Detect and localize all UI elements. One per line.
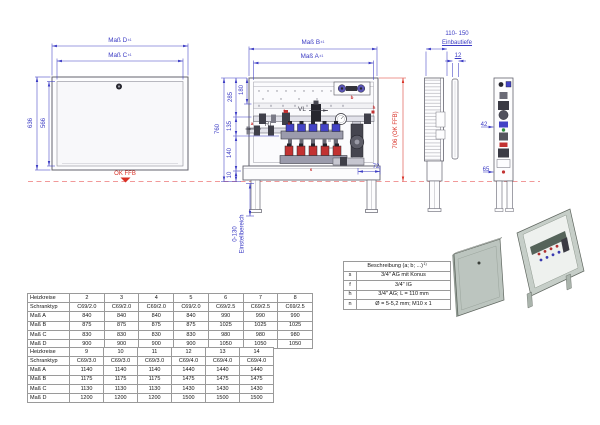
value-cell: 1430 bbox=[172, 384, 206, 393]
value-cell: 1025 bbox=[243, 321, 278, 330]
return-label-rl: RL bbox=[265, 121, 273, 128]
value-cell: 1475 bbox=[172, 375, 206, 384]
dim-140: 140 bbox=[227, 148, 233, 158]
dim-706-okffb: 706 (OK FFB) bbox=[393, 111, 399, 148]
dim-masz-d-tolerance: ±1 bbox=[128, 37, 132, 41]
value-cell: 1140 bbox=[70, 366, 104, 375]
part-letter-b: b bbox=[351, 95, 354, 100]
value-cell: 9 bbox=[70, 348, 104, 357]
value-cell: 980 bbox=[208, 330, 243, 339]
table-row: Maß C113011301130143014301430 bbox=[28, 384, 274, 393]
adjust-range-text: Einstellbereich bbox=[239, 214, 246, 253]
value-cell: 7 bbox=[243, 294, 278, 303]
value-cell: 6 bbox=[208, 294, 243, 303]
circulation-pump bbox=[350, 122, 364, 158]
value-cell: 1175 bbox=[138, 375, 172, 384]
row-header-cell: f bbox=[344, 281, 357, 291]
table-row: Maß D120012001200150015001500 bbox=[28, 393, 274, 402]
value-cell: 830 bbox=[104, 330, 139, 339]
table-row: s3/4" AG mit Konus bbox=[344, 271, 451, 281]
iso-views bbox=[453, 209, 585, 317]
legend-header-note: 1) bbox=[423, 262, 426, 266]
part-letter-h: h bbox=[373, 106, 376, 111]
table-row: SchranktypC69/2.0C69/2.0C69/2.0C69/2.0C6… bbox=[28, 303, 313, 312]
value-cell: 10 bbox=[104, 348, 138, 357]
value-cell: C69/2.0 bbox=[139, 303, 174, 312]
value-cell: 3/4" IG bbox=[357, 281, 451, 291]
value-cell: 830 bbox=[139, 330, 174, 339]
value-cell: C69/3.0 bbox=[138, 357, 172, 366]
value-cell: 1025 bbox=[278, 321, 313, 330]
dim-masz-a-tolerance: ±1 bbox=[319, 53, 323, 57]
legend-header: Beschreibung (a; b; ...)1) bbox=[344, 262, 451, 272]
table-row: f3/4" IG bbox=[344, 281, 451, 291]
dim-masz-c-tolerance: ±1 bbox=[128, 52, 132, 56]
dim-12: 12 bbox=[455, 53, 462, 59]
row-header-cell: Heizkreise bbox=[28, 348, 70, 357]
row-header-cell: Heizkreise bbox=[28, 294, 70, 303]
adjustable-feet bbox=[250, 180, 378, 213]
legend-header-text: Beschreibung (a; b; ...) bbox=[367, 263, 423, 269]
iso-door-panel bbox=[453, 238, 505, 318]
row-header-cell: Maß A bbox=[28, 312, 70, 321]
dim-depth-range: 110- 150 bbox=[445, 31, 468, 37]
value-cell: 3/4" AG; L = 110 mm bbox=[357, 290, 451, 300]
table-row: h3/4" AG; L = 110 mm bbox=[344, 290, 451, 300]
value-cell: 1475 bbox=[240, 375, 274, 384]
iso-cabinet-open bbox=[517, 209, 584, 308]
value-cell: 980 bbox=[278, 330, 313, 339]
value-cell: 1130 bbox=[138, 384, 172, 393]
row-header-cell: Maß B bbox=[28, 375, 70, 384]
row-header-cell: Schranktyp bbox=[28, 357, 70, 366]
value-cell: 875 bbox=[70, 321, 105, 330]
value-cell: 1500 bbox=[240, 393, 274, 402]
value-cell: 11 bbox=[138, 348, 172, 357]
part-letter-n: n bbox=[288, 122, 291, 127]
table-row: Maß B117511751175147514751475 bbox=[28, 375, 274, 384]
side-lock bbox=[499, 82, 504, 87]
dim-285: 285 bbox=[228, 92, 234, 102]
wall-bracket bbox=[334, 82, 370, 95]
value-cell: 830 bbox=[174, 330, 209, 339]
dim-72: 72 bbox=[373, 164, 380, 170]
iso-door-lock bbox=[478, 262, 481, 265]
dim-masz-c: Maß C±1 bbox=[108, 53, 131, 59]
table-row: Heizkreise2345678 bbox=[28, 294, 313, 303]
value-cell: 13 bbox=[206, 348, 240, 357]
value-cell: 1050 bbox=[278, 339, 313, 348]
value-cell: 8 bbox=[278, 294, 313, 303]
dim-42: 42 bbox=[481, 122, 488, 128]
value-cell: C69/2.5 bbox=[278, 303, 313, 312]
dim-depth-label: Einbautiefe bbox=[442, 40, 472, 46]
dim-636: 636 bbox=[28, 118, 34, 128]
row-header-cell: Maß D bbox=[28, 393, 70, 402]
value-cell: 830 bbox=[70, 330, 105, 339]
row-header-cell: Maß C bbox=[28, 384, 70, 393]
dim-masz-a: Maß A±1 bbox=[301, 54, 324, 60]
value-cell: 990 bbox=[208, 312, 243, 321]
table-row: Heizkreise91011121314 bbox=[28, 348, 274, 357]
value-cell: 875 bbox=[104, 321, 139, 330]
value-cell: C69/2.5 bbox=[243, 303, 278, 312]
value-cell: 1175 bbox=[104, 375, 138, 384]
size-table-circuits-2-8: Heizkreise2345678SchranktypC69/2.0C69/2.… bbox=[27, 293, 313, 349]
dim-masz-b-tolerance: ±1 bbox=[321, 39, 325, 43]
value-cell: 1500 bbox=[206, 393, 240, 402]
value-cell: C69/3.0 bbox=[104, 357, 138, 366]
value-cell: 840 bbox=[104, 312, 139, 321]
value-cell: 12 bbox=[172, 348, 206, 357]
value-cell: 4 bbox=[139, 294, 174, 303]
value-cell: 980 bbox=[243, 330, 278, 339]
value-cell: 1200 bbox=[138, 393, 172, 402]
supply-label-vl: VL bbox=[298, 107, 306, 114]
value-cell: 875 bbox=[139, 321, 174, 330]
part-letter-a: a bbox=[251, 122, 254, 127]
value-cell: 3 bbox=[104, 294, 139, 303]
value-cell: 1430 bbox=[206, 384, 240, 393]
adjust-range-label: 0-130 Einstellbereich bbox=[232, 214, 245, 253]
value-cell: 3/4" AG mit Konus bbox=[357, 271, 451, 281]
floor-level-label: OK FFB bbox=[114, 171, 136, 177]
row-header-cell: Schranktyp bbox=[28, 303, 70, 312]
dim-masz-b: Maß B±1 bbox=[301, 40, 324, 46]
value-cell: C69/2.0 bbox=[104, 303, 139, 312]
value-cell: 1430 bbox=[240, 384, 274, 393]
front-view-open bbox=[221, 47, 406, 217]
value-cell: 1200 bbox=[70, 393, 104, 402]
value-cell: Ø = 5-5,2 mm; M10 x 1 bbox=[357, 300, 451, 310]
part-letter-f: f bbox=[283, 110, 285, 115]
value-cell: C69/3.0 bbox=[70, 357, 104, 366]
value-cell: 14 bbox=[240, 348, 274, 357]
value-cell: 840 bbox=[139, 312, 174, 321]
value-cell: 1175 bbox=[70, 375, 104, 384]
value-cell: C69/4.0 bbox=[172, 357, 206, 366]
dim-masz-b-label: Maß B bbox=[301, 39, 320, 46]
legend-header-row: Beschreibung (a; b; ...)1) bbox=[344, 262, 451, 272]
row-header-cell: s bbox=[344, 271, 357, 281]
value-cell: 875 bbox=[174, 321, 209, 330]
dim-65: 65 bbox=[483, 167, 490, 173]
value-cell: 2 bbox=[70, 294, 105, 303]
dim-masz-d: Maß D±1 bbox=[108, 38, 131, 44]
value-cell: C69/4.0 bbox=[206, 357, 240, 366]
table-row: Maß C830830830830980980980 bbox=[28, 330, 313, 339]
value-cell: 1440 bbox=[206, 366, 240, 375]
side-view-wall-section bbox=[425, 49, 467, 212]
legend-table: Beschreibung (a; b; ...)1) s3/4" AG mit … bbox=[343, 261, 451, 310]
dim-135: 135 bbox=[227, 121, 233, 131]
table-row: Maß A840840840840990990990 bbox=[28, 312, 313, 321]
dim-566: 566 bbox=[41, 118, 47, 128]
adjust-range-value: 0-130 bbox=[232, 214, 239, 253]
value-cell: C69/2.0 bbox=[174, 303, 209, 312]
value-cell: 1025 bbox=[208, 321, 243, 330]
value-cell: 1500 bbox=[172, 393, 206, 402]
row-header-cell: Maß B bbox=[28, 321, 70, 330]
dim-10: 10 bbox=[227, 172, 233, 179]
row-header-cell: Maß A bbox=[28, 366, 70, 375]
table-row: nØ = 5-5,2 mm; M10 x 1 bbox=[344, 300, 451, 310]
part-letter-s: s bbox=[310, 168, 313, 173]
table-row: Maß B875875875875102510251025 bbox=[28, 321, 313, 330]
value-cell: 1440 bbox=[172, 366, 206, 375]
dim-masz-d-label: Maß D bbox=[108, 37, 127, 44]
value-cell: 1140 bbox=[138, 366, 172, 375]
table-row: SchranktypC69/3.0C69/3.0C69/3.0C69/4.0C6… bbox=[28, 357, 274, 366]
value-cell: 1475 bbox=[206, 375, 240, 384]
value-cell: 5 bbox=[174, 294, 209, 303]
value-cell: 840 bbox=[174, 312, 209, 321]
value-cell: 990 bbox=[278, 312, 313, 321]
value-cell: 990 bbox=[243, 312, 278, 321]
value-cell: 1130 bbox=[70, 384, 104, 393]
value-cell: 840 bbox=[70, 312, 105, 321]
dim-masz-a-label: Maß A bbox=[301, 53, 319, 60]
row-header-cell: Maß C bbox=[28, 330, 70, 339]
front-view-closed bbox=[35, 44, 188, 171]
dim-180: 180 bbox=[239, 85, 245, 95]
size-table-circuits-9-14: Heizkreise91011121314SchranktypC69/3.0C6… bbox=[27, 347, 274, 403]
side-view-manifold bbox=[481, 78, 514, 212]
value-cell: 1440 bbox=[240, 366, 274, 375]
value-cell: C69/2.5 bbox=[208, 303, 243, 312]
row-header-cell: n bbox=[344, 300, 357, 310]
dim-masz-c-label: Maß C bbox=[108, 52, 127, 59]
value-cell: 1130 bbox=[104, 384, 138, 393]
technical-drawing-page: Maß D±1 Maß C±1 636 566 OK FFB Maß B±1 M… bbox=[0, 0, 600, 425]
value-cell: 1200 bbox=[104, 393, 138, 402]
value-cell: 1140 bbox=[104, 366, 138, 375]
table-row: Maß A114011401140144014401440 bbox=[28, 366, 274, 375]
row-header-cell: h bbox=[344, 290, 357, 300]
dim-760: 760 bbox=[215, 124, 221, 134]
value-cell: C69/2.0 bbox=[70, 303, 105, 312]
value-cell: C69/4.0 bbox=[240, 357, 274, 366]
